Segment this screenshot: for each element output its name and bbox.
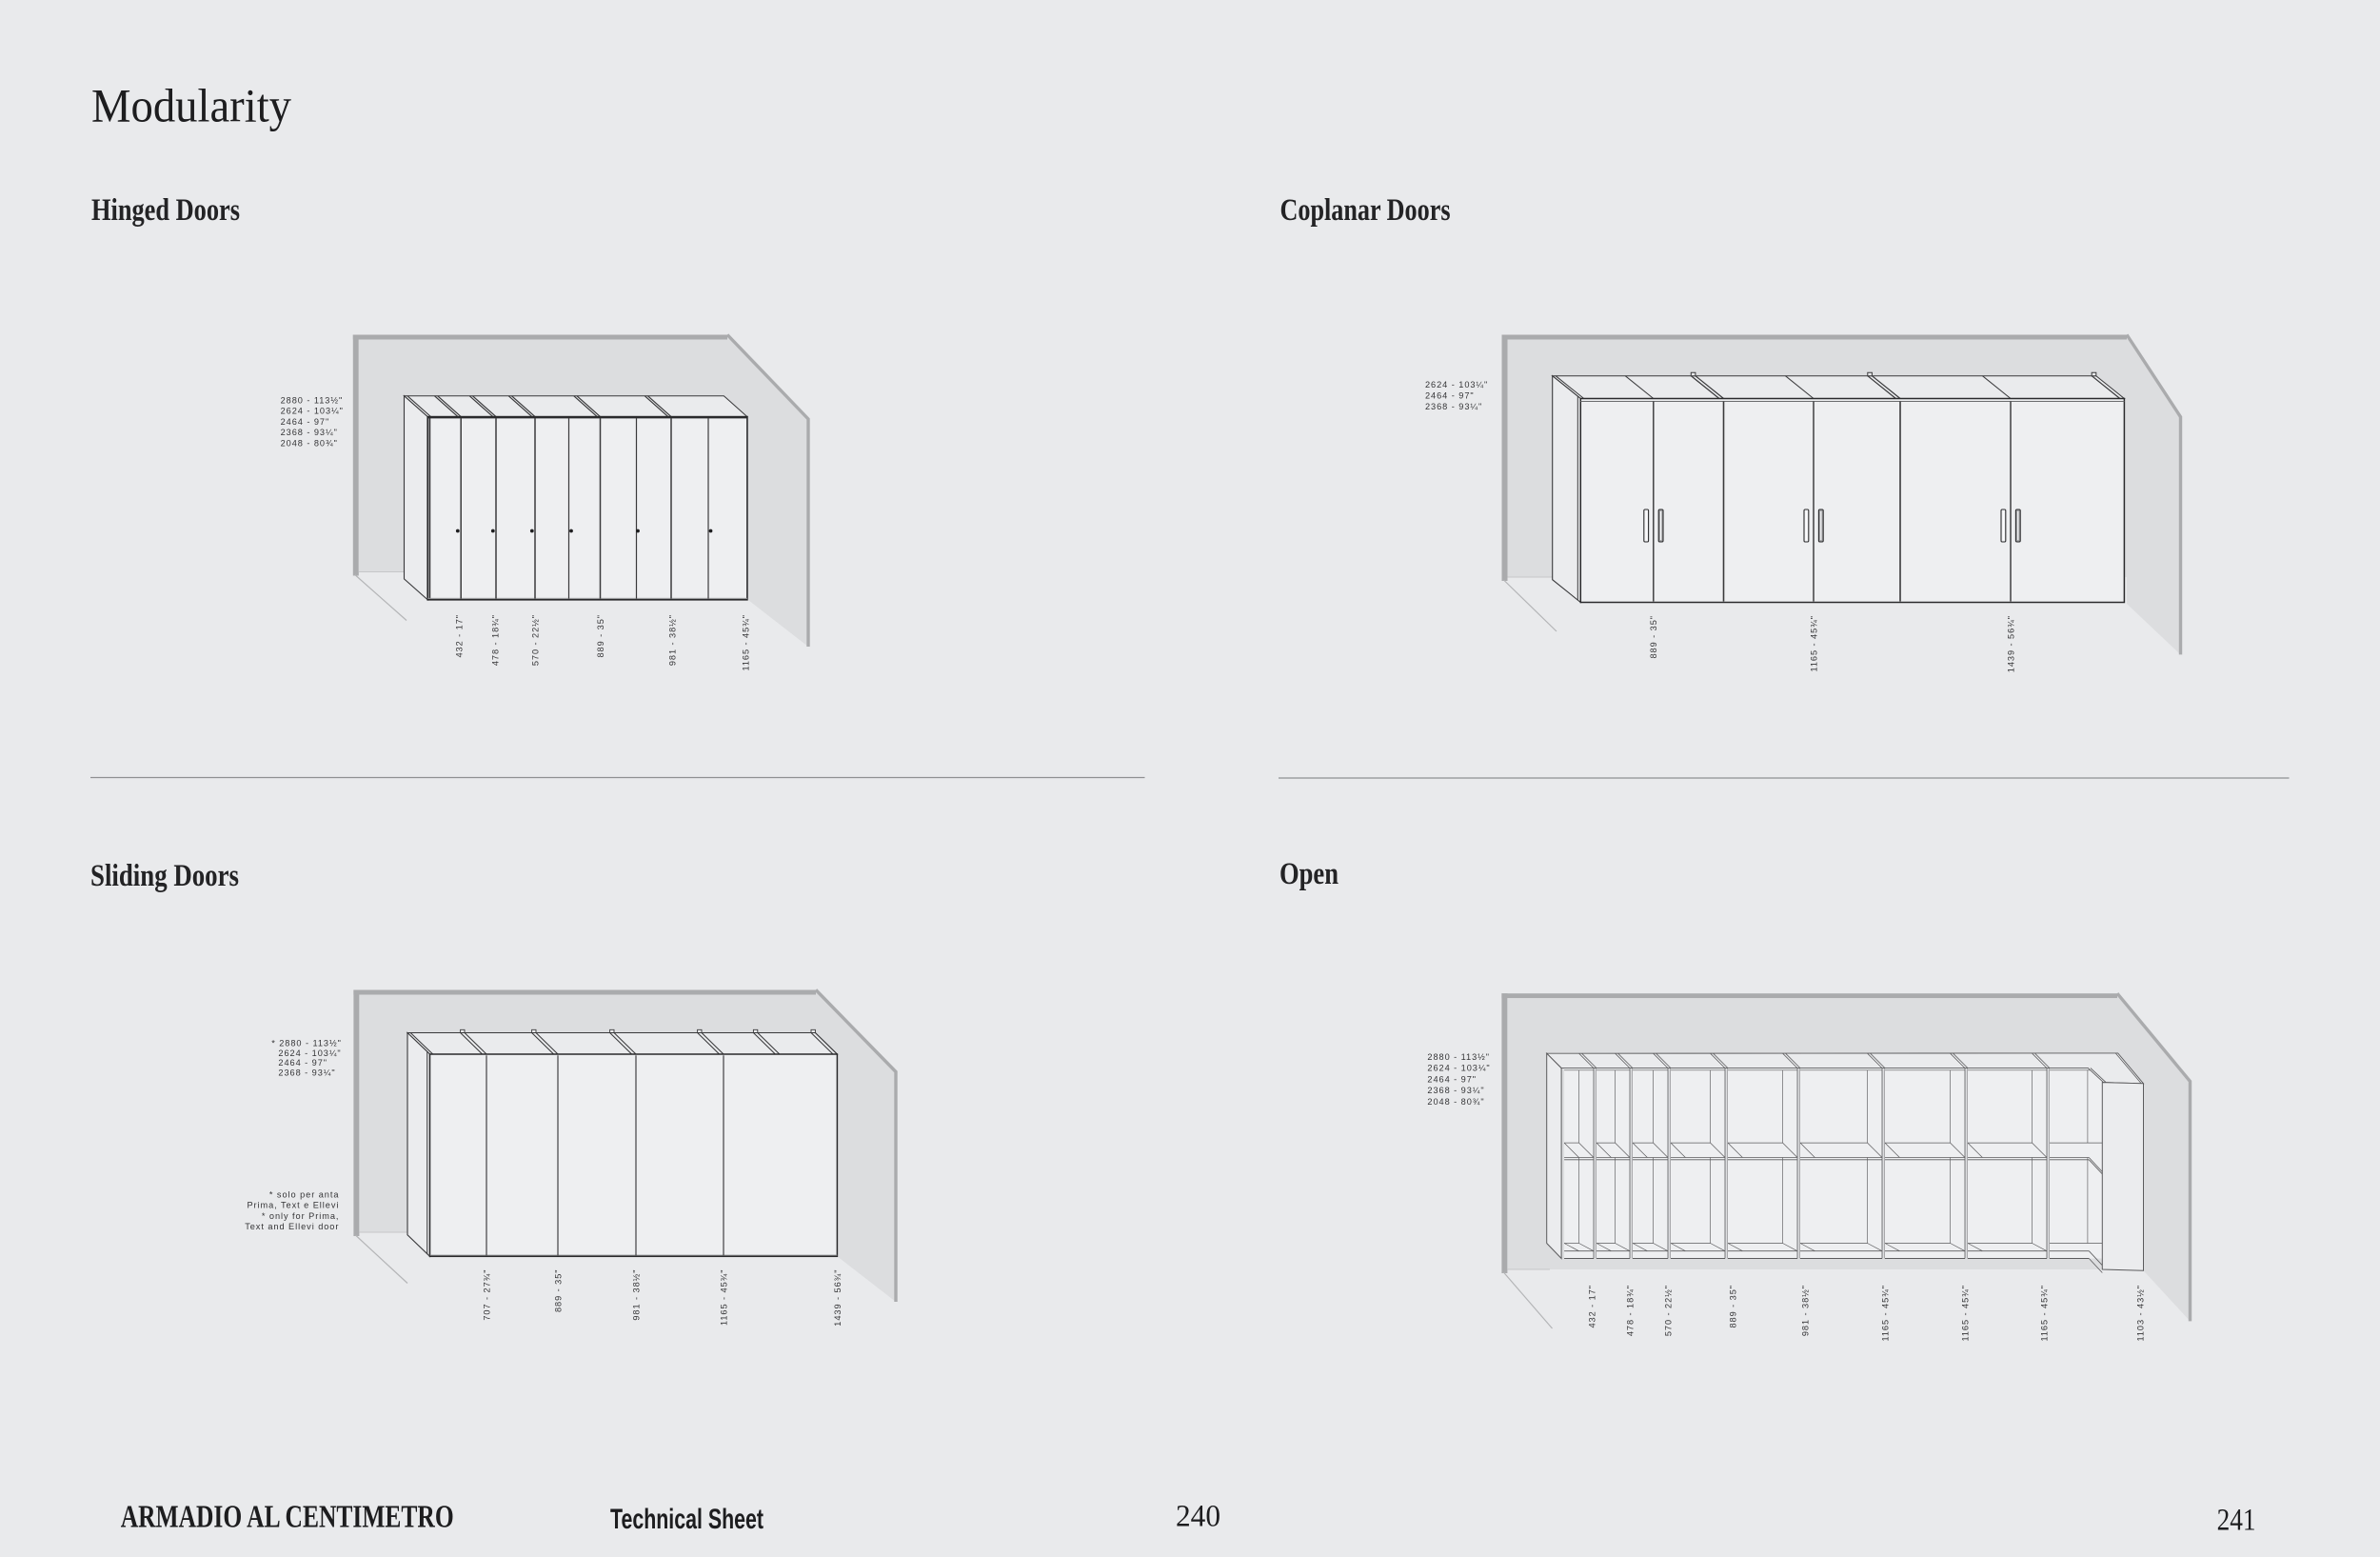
svg-text:2368 - 93¼": 2368 - 93¼" (1427, 1086, 1484, 1095)
svg-text:889 - 35": 889 - 35" (1728, 1285, 1737, 1328)
svg-text:2368 - 93¼": 2368 - 93¼" (281, 428, 338, 437)
svg-text:889 - 35": 889 - 35" (596, 614, 605, 658)
svg-text:2368 - 93¼": 2368 - 93¼" (278, 1068, 335, 1077)
svg-text:1439 - 56¾": 1439 - 56¾" (2006, 615, 2015, 672)
svg-text:1165 - 45¾": 1165 - 45¾" (1809, 615, 1818, 672)
svg-text:2048 - 80¾": 2048 - 80¾" (1427, 1097, 1484, 1107)
svg-text:478 - 18¾": 478 - 18¾" (490, 614, 500, 666)
svg-text:1165 - 45¾": 1165 - 45¾" (2039, 1285, 2049, 1342)
svg-text:2464 - 97": 2464 - 97" (281, 417, 330, 427)
svg-text:241: 241 (2217, 1504, 2256, 1538)
svg-text:2880 - 113½": 2880 - 113½" (1427, 1052, 1490, 1062)
svg-text:* solo per anta: * solo per anta (269, 1189, 340, 1199)
svg-text:981 - 38½": 981 - 38½" (631, 1269, 641, 1321)
svg-text:2624 - 103¼": 2624 - 103¼" (1425, 380, 1488, 389)
svg-text:Technical Sheet: Technical Sheet (610, 1504, 764, 1535)
svg-text:981 - 38½": 981 - 38½" (667, 614, 677, 666)
svg-text:2624 - 103¼": 2624 - 103¼" (281, 407, 344, 416)
svg-text:Text and Ellevi door: Text and Ellevi door (245, 1222, 339, 1231)
svg-text:707 - 27¾": 707 - 27¾" (482, 1269, 491, 1321)
svg-text:Open: Open (1279, 857, 1339, 891)
svg-text:2464 - 97": 2464 - 97" (1427, 1074, 1477, 1084)
svg-text:ARMADIO AL CENTIMETRO: ARMADIO AL CENTIMETRO (121, 1500, 454, 1535)
svg-text:889 - 35": 889 - 35" (1649, 615, 1658, 659)
svg-text:Coplanar Doors: Coplanar Doors (1280, 193, 1451, 228)
svg-text:570 - 22½": 570 - 22½" (1663, 1285, 1673, 1336)
svg-text:1103 - 43½": 1103 - 43½" (2135, 1285, 2145, 1342)
svg-text:2464 - 97": 2464 - 97" (1425, 391, 1475, 401)
svg-text:570 - 22½": 570 - 22½" (530, 614, 540, 666)
svg-text:432 - 17": 432 - 17" (454, 614, 464, 658)
svg-text:981 - 38½": 981 - 38½" (1800, 1285, 1810, 1336)
svg-text:Sliding Doors: Sliding Doors (90, 859, 239, 893)
svg-text:Prima, Text e Ellevi: Prima, Text e Ellevi (247, 1201, 339, 1210)
svg-text:Modularity: Modularity (91, 79, 291, 132)
svg-text:* only for Prima,: * only for Prima, (262, 1211, 340, 1221)
svg-text:2048 - 80¾": 2048 - 80¾" (281, 438, 338, 448)
svg-text:1165 - 45¾": 1165 - 45¾" (1880, 1285, 1890, 1342)
svg-text:1165 - 45¾": 1165 - 45¾" (1960, 1285, 1970, 1342)
svg-text:2624 - 103¼": 2624 - 103¼" (278, 1048, 341, 1058)
svg-text:2368 - 93¼": 2368 - 93¼" (1425, 402, 1482, 411)
svg-text:2624 - 103¼": 2624 - 103¼" (1427, 1064, 1490, 1073)
svg-text:1439 - 56¾": 1439 - 56¾" (833, 1269, 843, 1327)
svg-text:1165 - 45¾": 1165 - 45¾" (719, 1269, 728, 1327)
svg-text:478 - 18¾": 478 - 18¾" (1625, 1285, 1635, 1336)
svg-text:2464 - 97": 2464 - 97" (278, 1058, 327, 1068)
svg-text:Hinged Doors: Hinged Doors (91, 193, 240, 228)
svg-text:* 2880 - 113½": * 2880 - 113½" (271, 1039, 342, 1048)
svg-text:1165 - 45¾": 1165 - 45¾" (741, 614, 750, 671)
svg-text:432 - 17": 432 - 17" (1587, 1285, 1597, 1328)
svg-text:2880 - 113½": 2880 - 113½" (281, 396, 344, 406)
svg-text:889 - 35": 889 - 35" (553, 1269, 563, 1313)
svg-text:240: 240 (1176, 1500, 1220, 1534)
